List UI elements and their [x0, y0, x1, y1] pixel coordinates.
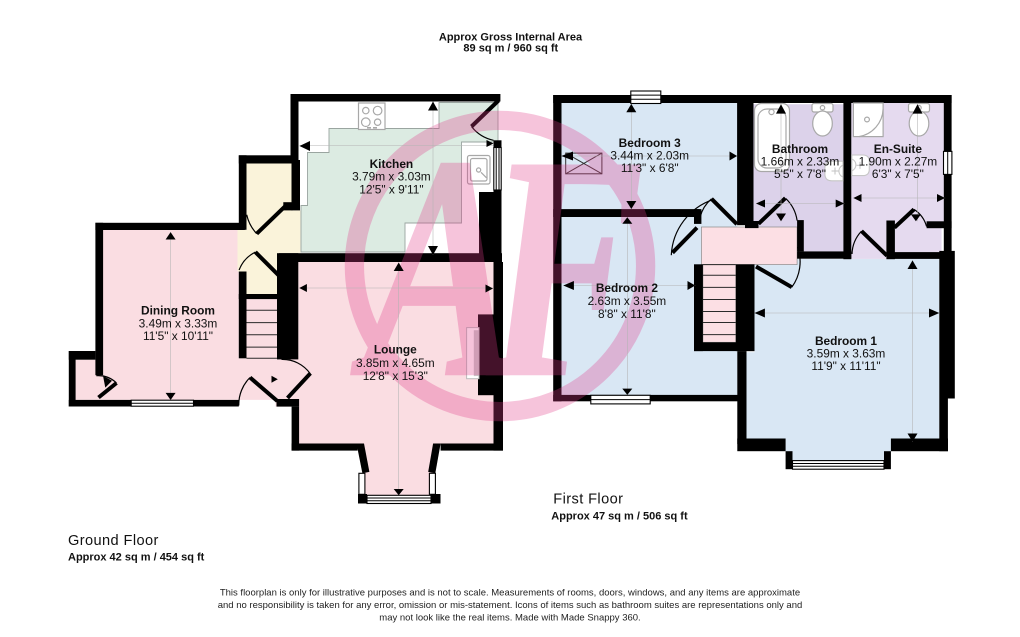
svg-text:3.79m x 3.03m: 3.79m x 3.03m: [352, 169, 431, 183]
svg-text:11'9" x 11'11": 11'9" x 11'11": [811, 359, 880, 373]
svg-text:Approx 47 sq m / 506 sq ft: Approx 47 sq m / 506 sq ft: [551, 511, 688, 523]
svg-text:and no responsibility is taken: and no responsibility is taken for any e…: [218, 600, 803, 611]
svg-text:AF: AF: [349, 91, 642, 443]
svg-text:2.63m x 3.55m: 2.63m x 3.55m: [588, 294, 667, 308]
svg-text:Lounge: Lounge: [374, 343, 417, 357]
svg-text:may not look like the real ite: may not look like the real items. Made w…: [379, 613, 640, 624]
svg-text:3.85m x 4.65m: 3.85m x 4.65m: [356, 356, 435, 370]
svg-text:89 sq m / 960 sq ft: 89 sq m / 960 sq ft: [463, 43, 558, 55]
svg-text:First Floor: First Floor: [553, 492, 623, 508]
svg-text:11'5" x 10'11": 11'5" x 10'11": [143, 329, 213, 343]
svg-text:Ground Floor: Ground Floor: [68, 533, 159, 549]
svg-text:Bedroom 2: Bedroom 2: [596, 281, 658, 295]
svg-text:This floorplan is only for ill: This floorplan is only for illustrative …: [220, 588, 800, 599]
svg-text:11'3" x 6'8": 11'3" x 6'8": [621, 161, 679, 175]
svg-text:6'3" x 7'5": 6'3" x 7'5": [872, 167, 924, 181]
svg-text:12'5" x 9'11": 12'5" x 9'11": [359, 182, 423, 196]
svg-text:5'5" x 7'8": 5'5" x 7'8": [774, 167, 826, 181]
svg-text:8'8" x 11'8": 8'8" x 11'8": [598, 307, 656, 321]
svg-text:Approx 42 sq m / 454 sq ft: Approx 42 sq m / 454 sq ft: [68, 551, 205, 563]
svg-text:12'8" x 15'3": 12'8" x 15'3": [363, 369, 428, 383]
